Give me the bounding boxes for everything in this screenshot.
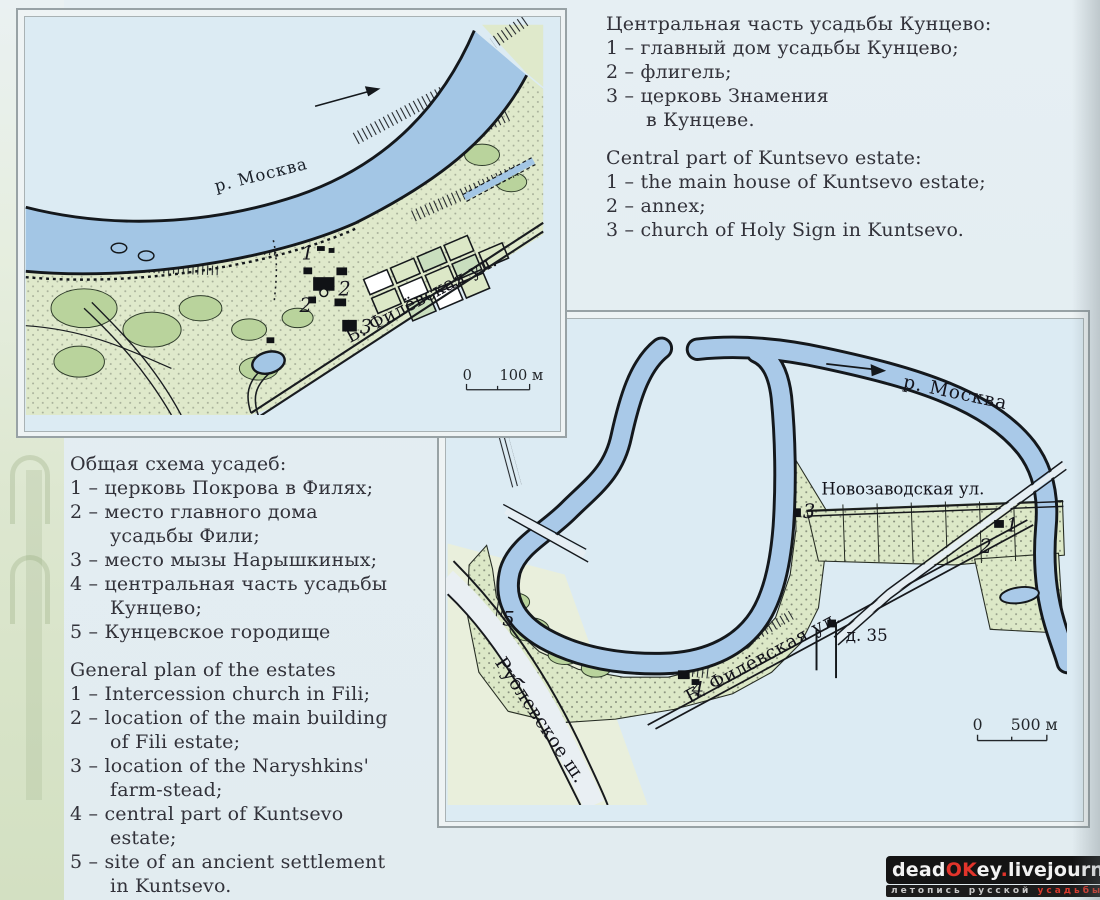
legend-item: 3 – церковь Знамения: [606, 84, 1096, 108]
legend-item: 5 – Кунцевское городище: [70, 620, 470, 644]
legend-item: 1 – церковь Покрова в Филях;: [70, 476, 470, 500]
watermark-site: deadOKey.livejournal .com: [886, 856, 1100, 884]
legend-item-cont: Кунцево;: [70, 596, 470, 620]
page: р. Москва: [0, 0, 1100, 900]
legend-item: 1 – Intercession church in Fili;: [70, 682, 470, 706]
legend-kuntsevo: Центральная часть усадьбы Кунцево: 1 – г…: [606, 12, 1096, 242]
legend-item-cont: of Fili estate;: [70, 730, 470, 754]
legend-item-cont: farm-stead;: [70, 778, 470, 802]
courtyard: [320, 289, 328, 297]
legend-item: 3 – location of the Naryshkins': [70, 754, 470, 778]
band-decor: [26, 470, 42, 800]
map2-novozavodskaya-label: Новозаводская ул.: [821, 480, 984, 499]
legend-item-cont: в Кунцеве.: [606, 108, 1096, 132]
pond: [111, 243, 127, 253]
map1-marker-1: 1: [301, 242, 313, 265]
tree-clump: [232, 319, 267, 340]
map2-marker-3: 3: [803, 500, 815, 523]
map1-paper: р. Москва: [24, 16, 561, 432]
legend-item: 1 – главный дом усадьбы Кунцево;: [606, 36, 1096, 60]
legend-item: 4 – central part of Kuntsevo: [70, 802, 470, 826]
map2-scale-zero: 0: [973, 716, 983, 734]
legend-title-ru: Центральная часть усадьбы Кунцево:: [606, 12, 1096, 36]
legend-item: 3 – место мызы Нарышкиных;: [70, 548, 470, 572]
legend-item-cont: усадьбы Фили;: [70, 524, 470, 548]
watermark-tagline: летопись русской усадьбы: [886, 885, 1100, 897]
map-panel-kuntsevo-center: р. Москва: [16, 8, 567, 438]
tree-clump: [54, 346, 104, 377]
watermark-domain: deadOKey.livejournal: [886, 856, 1100, 884]
pond: [138, 251, 154, 261]
legend-item: 2 – location of the main building: [70, 706, 470, 730]
legend-item: 3 – church of Holy Sign in Kuntsevo.: [606, 218, 1096, 242]
legend-item: 2 – флигель;: [606, 60, 1096, 84]
legend-title-en: General plan of the estates: [70, 658, 470, 682]
tree-clump: [179, 296, 222, 321]
map1-marker-2b: 2: [299, 294, 312, 317]
legend-title-en: Central part of Kuntsevo estate:: [606, 146, 1096, 170]
map2-marker-5: 5: [502, 607, 514, 630]
legend-item: 2 – место главного дома: [70, 500, 470, 524]
map1-marker-2a: 2: [337, 278, 350, 301]
legend-item: 2 – annex;: [606, 194, 1096, 218]
legend-item-cont: estate;: [70, 826, 470, 850]
map2-marker-2: 2: [978, 535, 991, 558]
map1-scale-zero: 0: [463, 367, 472, 384]
legend-item-cont: in Kuntsevo.: [70, 874, 470, 898]
watermark: deadOKey.livejournal .com летопись русск…: [886, 856, 1100, 897]
tree-clump: [51, 289, 117, 328]
tree-clump: [123, 312, 181, 347]
legend-item: 4 – центральная часть усадьбы: [70, 572, 470, 596]
map2-marker-1: 1: [1006, 514, 1018, 537]
map1-svg: р. Москва: [25, 17, 544, 415]
legend-general-plan: Общая схема усадеб: 1 – церковь Покрова …: [70, 452, 470, 898]
legend-item: 5 – site of an ancient settlement: [70, 850, 470, 874]
map1-scale-label: 100 м: [500, 367, 544, 384]
legend-item: 1 – the main house of Kuntsevo estate;: [606, 170, 1096, 194]
legend-title-ru: Общая схема усадеб:: [70, 452, 470, 476]
map2-scale-label: 500 м: [1011, 716, 1058, 734]
map2-d35-label: д. 35: [846, 626, 888, 645]
